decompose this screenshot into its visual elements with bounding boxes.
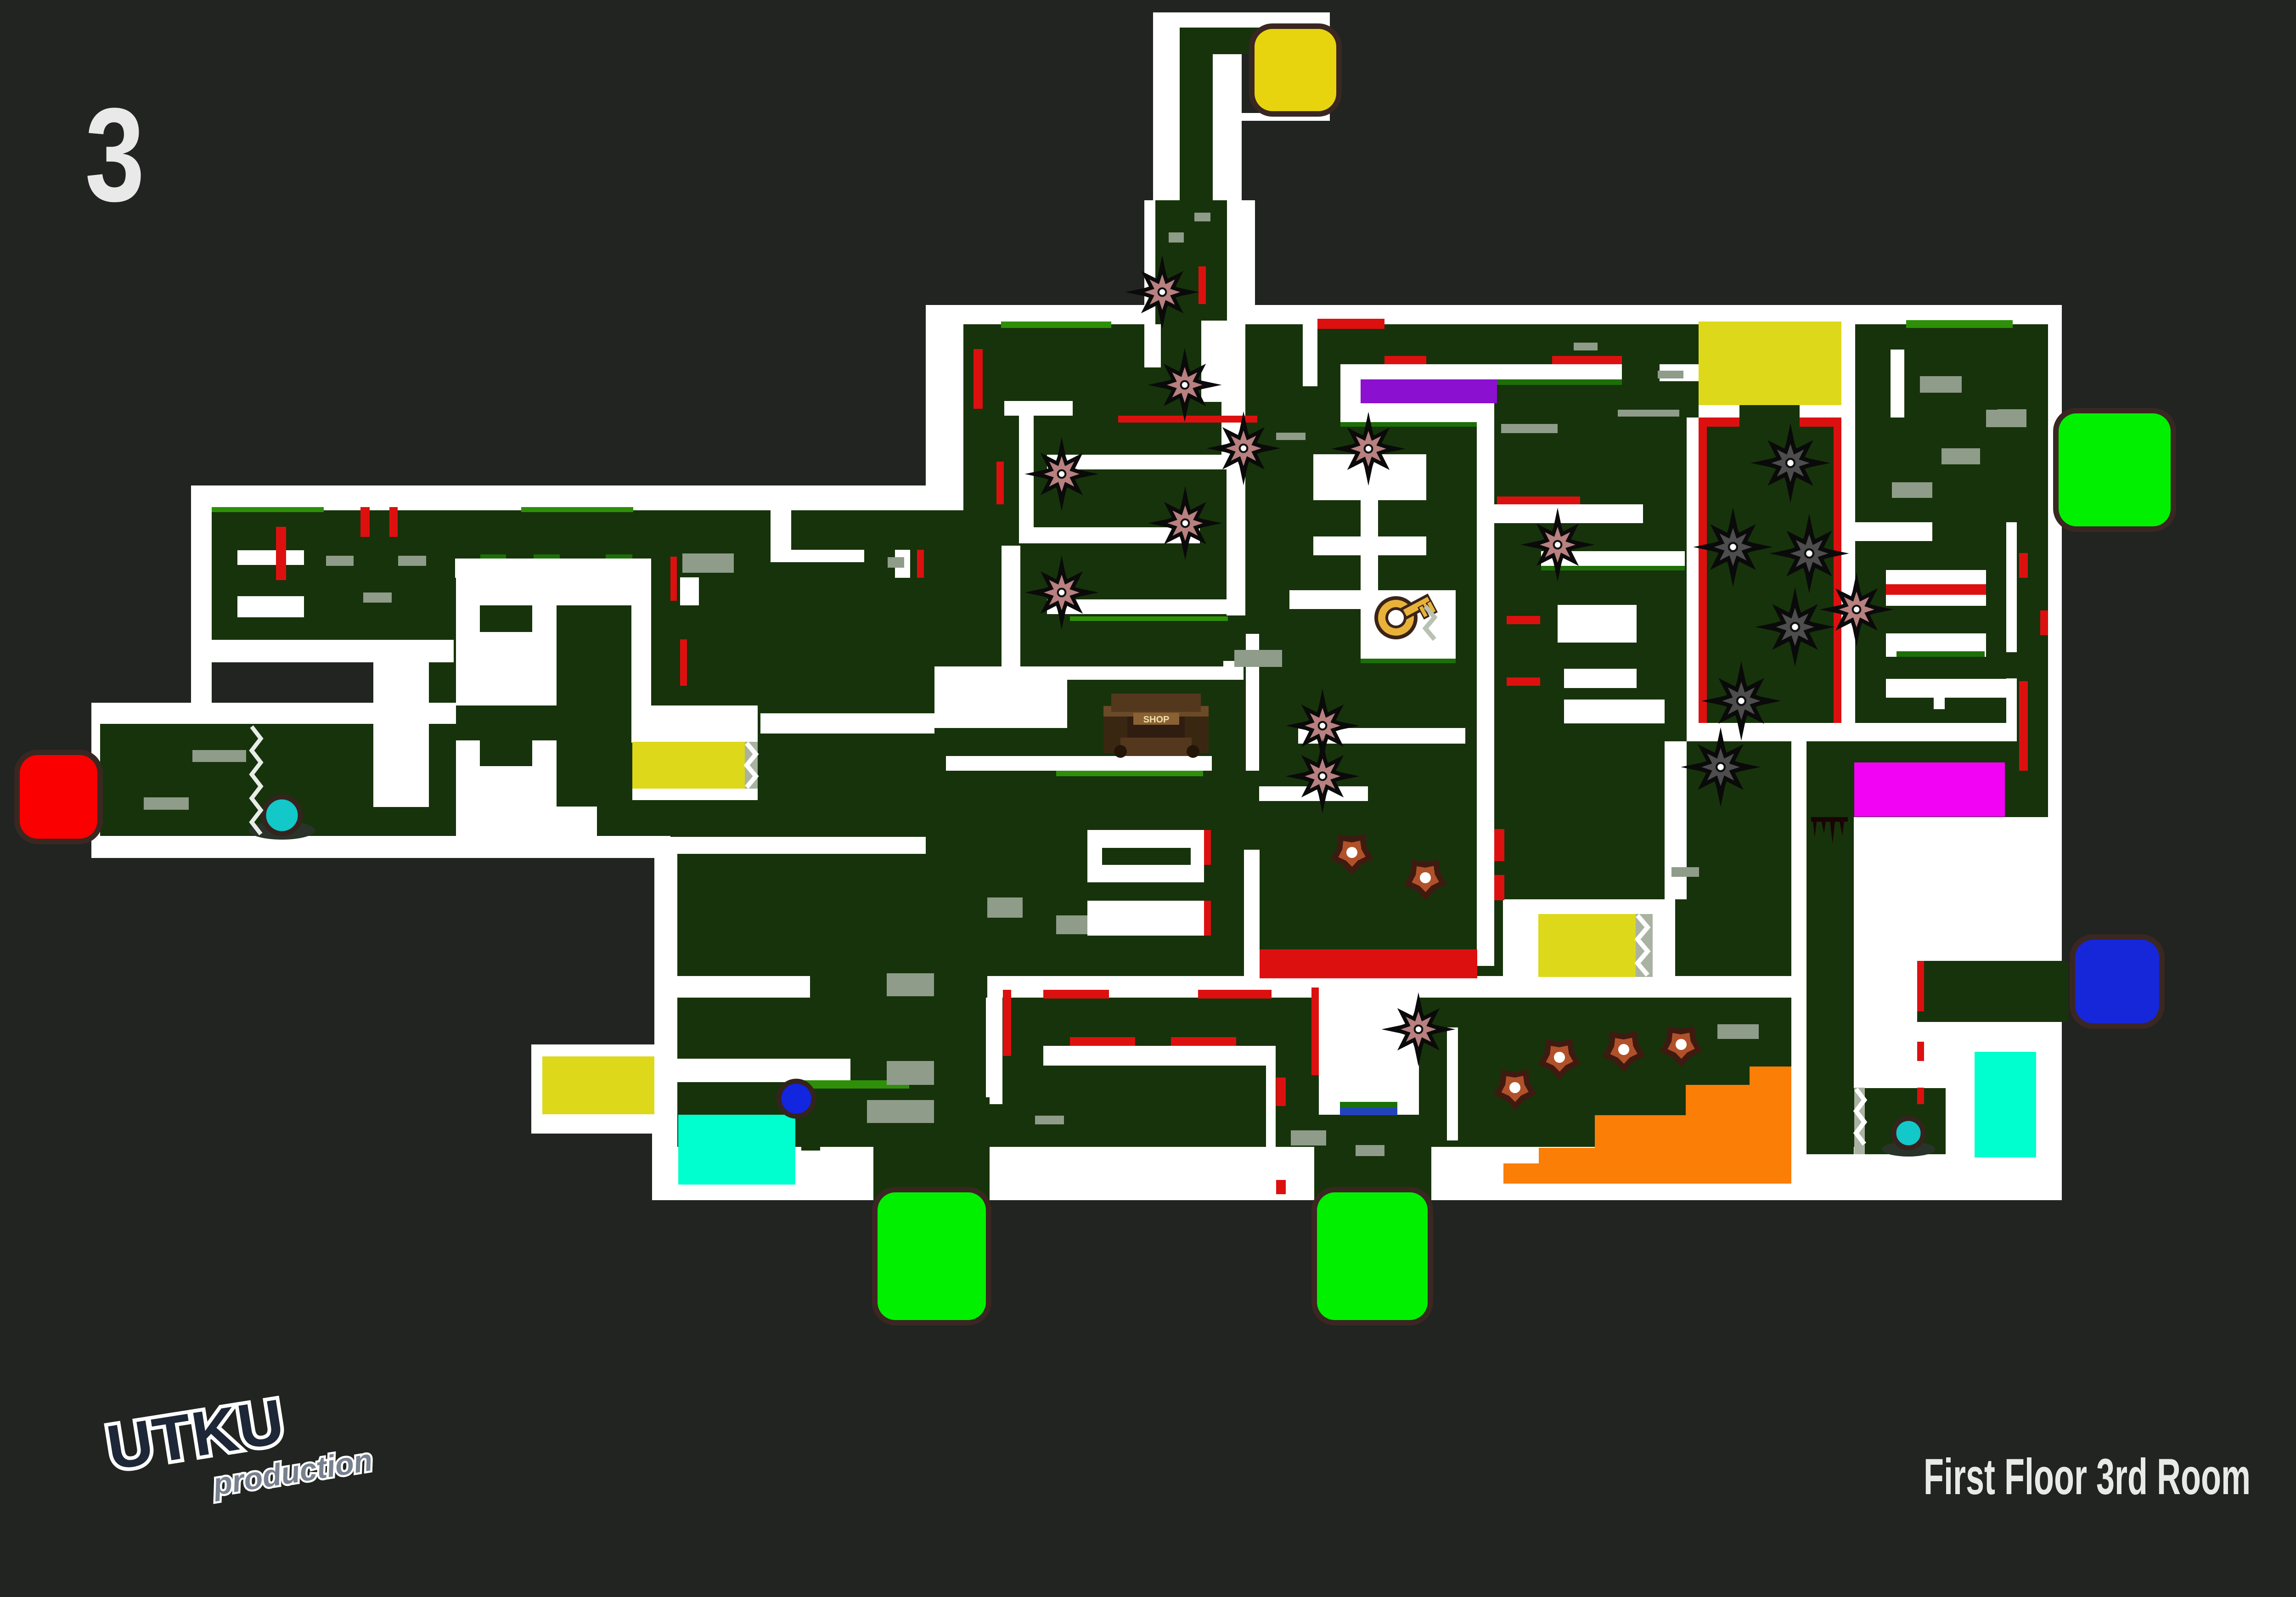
svg-text:First Floor 3rd Room: First Floor 3rd Room	[1924, 1449, 2251, 1505]
svg-text:SHOP: SHOP	[1143, 715, 1170, 725]
svg-text:3: 3	[85, 80, 145, 229]
